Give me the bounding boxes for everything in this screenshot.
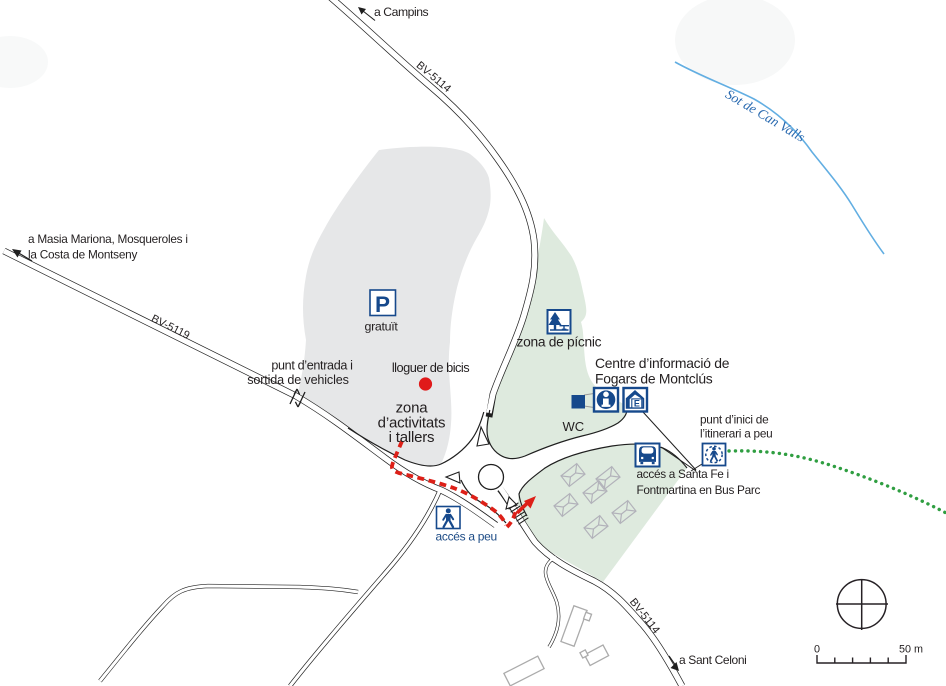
svg-text:lloguer de bicis: lloguer de bicis xyxy=(392,360,469,375)
svg-text:a Campins: a Campins xyxy=(374,5,429,19)
svg-text:Centre d’informació de: Centre d’informació de xyxy=(595,355,730,371)
svg-text:E: E xyxy=(634,399,640,409)
svg-text:accés a peu: accés a peu xyxy=(436,530,497,544)
svg-text:Fogars de Montclús: Fogars de Montclús xyxy=(595,371,713,387)
svg-text:gratuït: gratuït xyxy=(364,320,398,334)
svg-text:P: P xyxy=(375,292,390,317)
svg-text:a Sant Celoni: a Sant Celoni xyxy=(679,653,747,667)
svg-text:punt d’entrada i: punt d’entrada i xyxy=(271,359,352,373)
svg-text:zona de pícnic: zona de pícnic xyxy=(517,335,602,350)
svg-text:la Costa de Montseny: la Costa de Montseny xyxy=(28,248,137,262)
svg-text:i tallers: i tallers xyxy=(389,429,435,446)
svg-text:a Masia Mariona, Mosqueroles i: a Masia Mariona, Mosqueroles i xyxy=(28,232,188,246)
svg-text:Fontmartina en Bus Parc: Fontmartina en Bus Parc xyxy=(637,483,761,497)
svg-text:accés a Santa Fe i: accés a Santa Fe i xyxy=(637,467,729,481)
svg-text:WC: WC xyxy=(563,419,585,434)
svg-text:punt d’inici de: punt d’inici de xyxy=(700,413,769,427)
svg-text:l’itinerari a peu: l’itinerari a peu xyxy=(700,427,772,441)
svg-text:0: 0 xyxy=(814,644,820,656)
svg-text:sortida de vehicles: sortida de vehicles xyxy=(247,373,348,387)
svg-text:50 m: 50 m xyxy=(899,644,923,656)
